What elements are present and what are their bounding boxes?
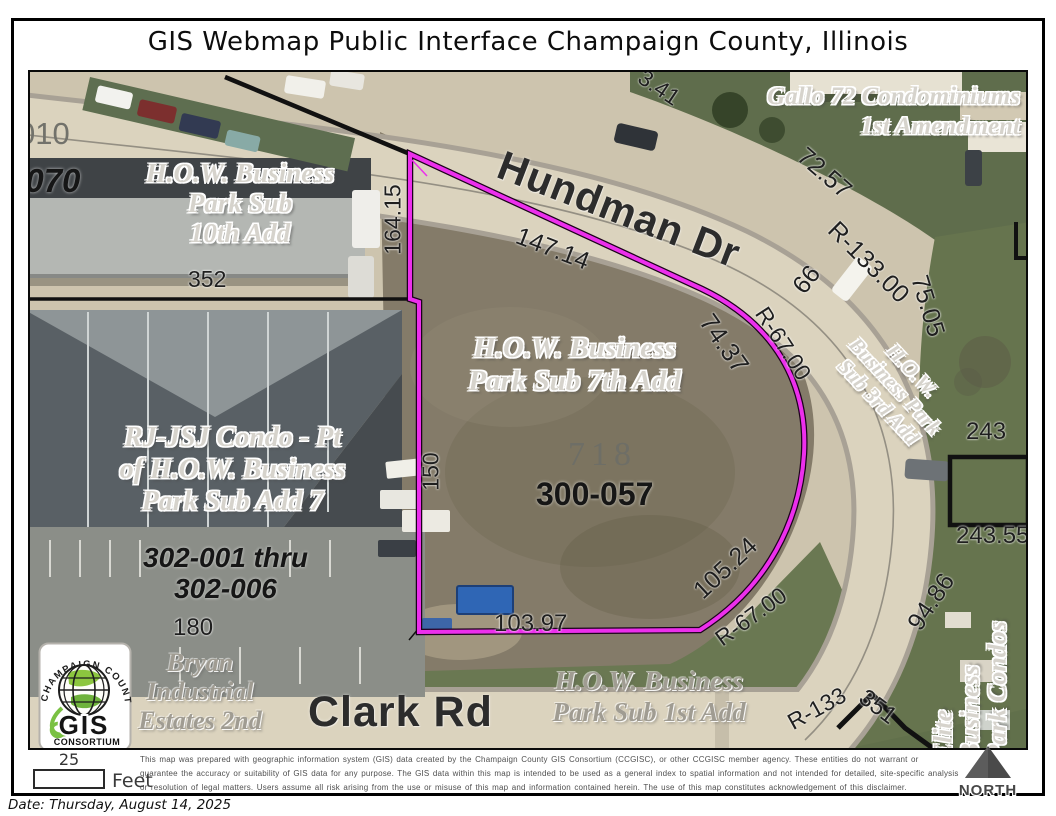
scale-bar: [33, 769, 105, 789]
dim-243-55: 243.55: [956, 522, 1028, 550]
dim-103-97: 103.97: [494, 610, 567, 638]
subdivision-how-7th: H.O.W. Business Park Sub 7th Add: [442, 332, 707, 398]
parcel-id-302-range: 302-001 thru 302-006: [128, 542, 323, 604]
north-label: NORTH: [958, 782, 1018, 799]
subdivision-bryan: Bryan Industrial Estates 2nd: [115, 648, 285, 735]
svg-text:GIS: GIS: [59, 710, 110, 740]
gis-consortium-logo-icon: CHAMPAIGN COUNTY GIS CONSORTIUM: [38, 642, 132, 750]
map-viewport: 010 0-070 H.O.W. Business Park Sub 10th …: [28, 70, 1028, 750]
subdivision-gallo: Gallo 72 Condominiums 1st Amendment: [730, 82, 1020, 142]
parcel-id-070: 0-070: [28, 162, 80, 200]
parcel-id-718: 718: [568, 436, 637, 474]
subdivision-how-10th: H.O.W. Business Park Sub 10th Add: [110, 158, 370, 248]
gis-webmap-page: GIS Webmap Public Interface Champaign Co…: [0, 0, 1056, 816]
page-title: GIS Webmap Public Interface Champaign Co…: [0, 27, 1056, 57]
north-arrow: NORTH: [958, 744, 1018, 799]
dim-243: 243: [966, 418, 1006, 446]
svg-text:CONSORTIUM: CONSORTIUM: [54, 737, 121, 747]
dim-150: 150: [418, 439, 445, 505]
street-clark-rd: Clark Rd: [308, 688, 493, 737]
parcel-id-010: 010: [28, 116, 70, 152]
date-line: Date: Thursday, August 14, 2025: [8, 797, 231, 813]
subdivision-elite: Elite Business Park Condos: [930, 571, 1011, 751]
dim-180: 180: [173, 614, 213, 642]
subdivision-how-1st: H.O.W. Business Park Sub 1st Add: [518, 666, 780, 728]
north-arrow-icon: [961, 744, 1015, 780]
subdivision-rjjsj: RJ-JSJ Condo - Pt of H.O.W. Business Par…: [85, 422, 380, 518]
dim-352: 352: [188, 266, 226, 293]
scale-value: 25: [33, 750, 105, 769]
parcel-id-300-057: 300-057: [536, 476, 653, 513]
disclaimer-text: This map was prepared with geographic in…: [140, 753, 950, 795]
dim-164-15: 164.15: [380, 167, 407, 273]
